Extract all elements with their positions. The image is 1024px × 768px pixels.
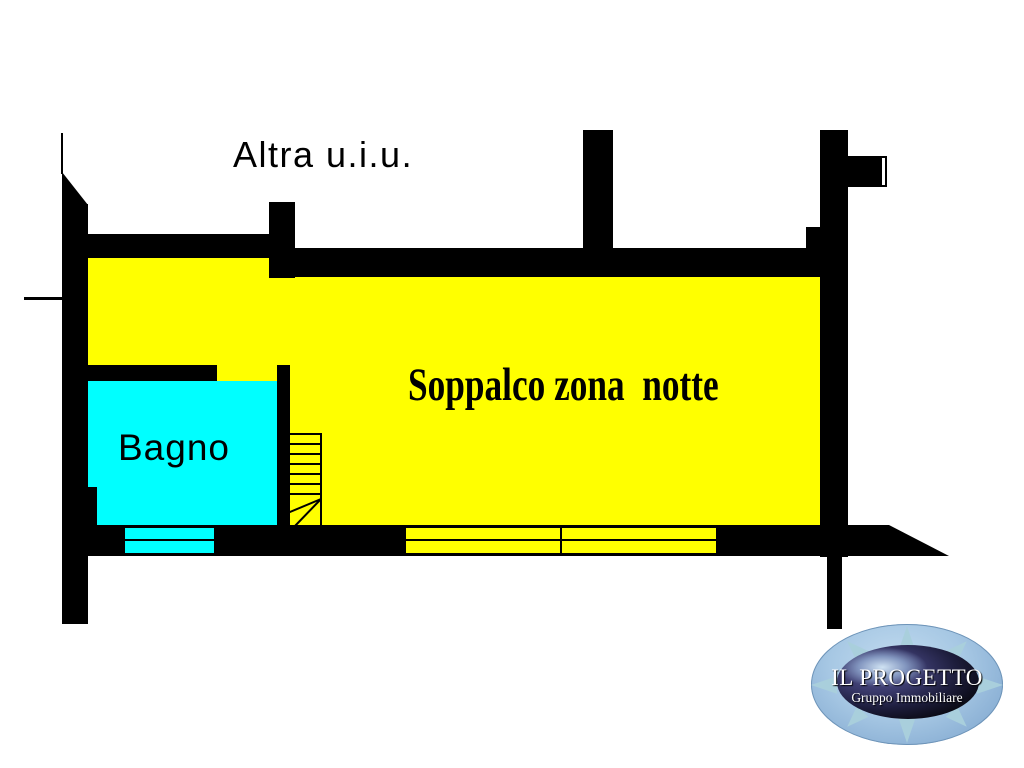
stair-tread <box>290 453 321 455</box>
stair-tread <box>290 443 321 445</box>
stair-tread <box>290 433 321 435</box>
wall-diagonal <box>62 172 88 205</box>
wall-protrusion <box>848 158 882 186</box>
logo-title: IL PROGETTO <box>811 666 1003 689</box>
wall-pier-top <box>269 202 295 278</box>
label-altra-uiu: Altra u.i.u. <box>233 137 413 173</box>
agency-logo: IL PROGETTO Gruppo Immobiliare <box>811 624 1003 745</box>
stair-tread <box>290 493 321 495</box>
floor-plan: Altra u.i.u. Soppalco zona notte Bagno I… <box>0 0 1024 768</box>
window-mullion <box>560 528 562 553</box>
logo-subtitle: Gruppo Immobiliare <box>811 691 1003 705</box>
wall-left <box>62 204 88 624</box>
stair-tread <box>290 463 321 465</box>
wall-tick <box>24 297 62 300</box>
soppalco-room-upper-strip <box>88 258 269 278</box>
wall-protrusion-line <box>885 156 887 187</box>
bagno-window <box>122 525 217 556</box>
bagno-wall-top <box>85 365 217 381</box>
wall-protrusion-line <box>848 156 887 158</box>
stair-tread <box>290 483 321 485</box>
bagno-wall-pier <box>88 487 97 527</box>
wall-protrusion-line <box>848 185 887 187</box>
label-soppalco-zona-notte: Soppalco zona notte <box>408 362 719 409</box>
stair-tread <box>290 473 321 475</box>
label-bagno: Bagno <box>118 429 230 466</box>
window-mullion <box>125 539 214 541</box>
wall-bottom-diagonal <box>889 525 949 556</box>
wall-top-left <box>88 234 269 258</box>
wall-top-right <box>295 248 848 277</box>
bagno-wall-right <box>277 365 290 527</box>
wall-below-bottom <box>827 556 842 629</box>
soppalco-window <box>403 525 719 556</box>
wall-stub-middle <box>583 130 613 250</box>
wall <box>61 133 63 174</box>
wall-right <box>820 130 848 557</box>
